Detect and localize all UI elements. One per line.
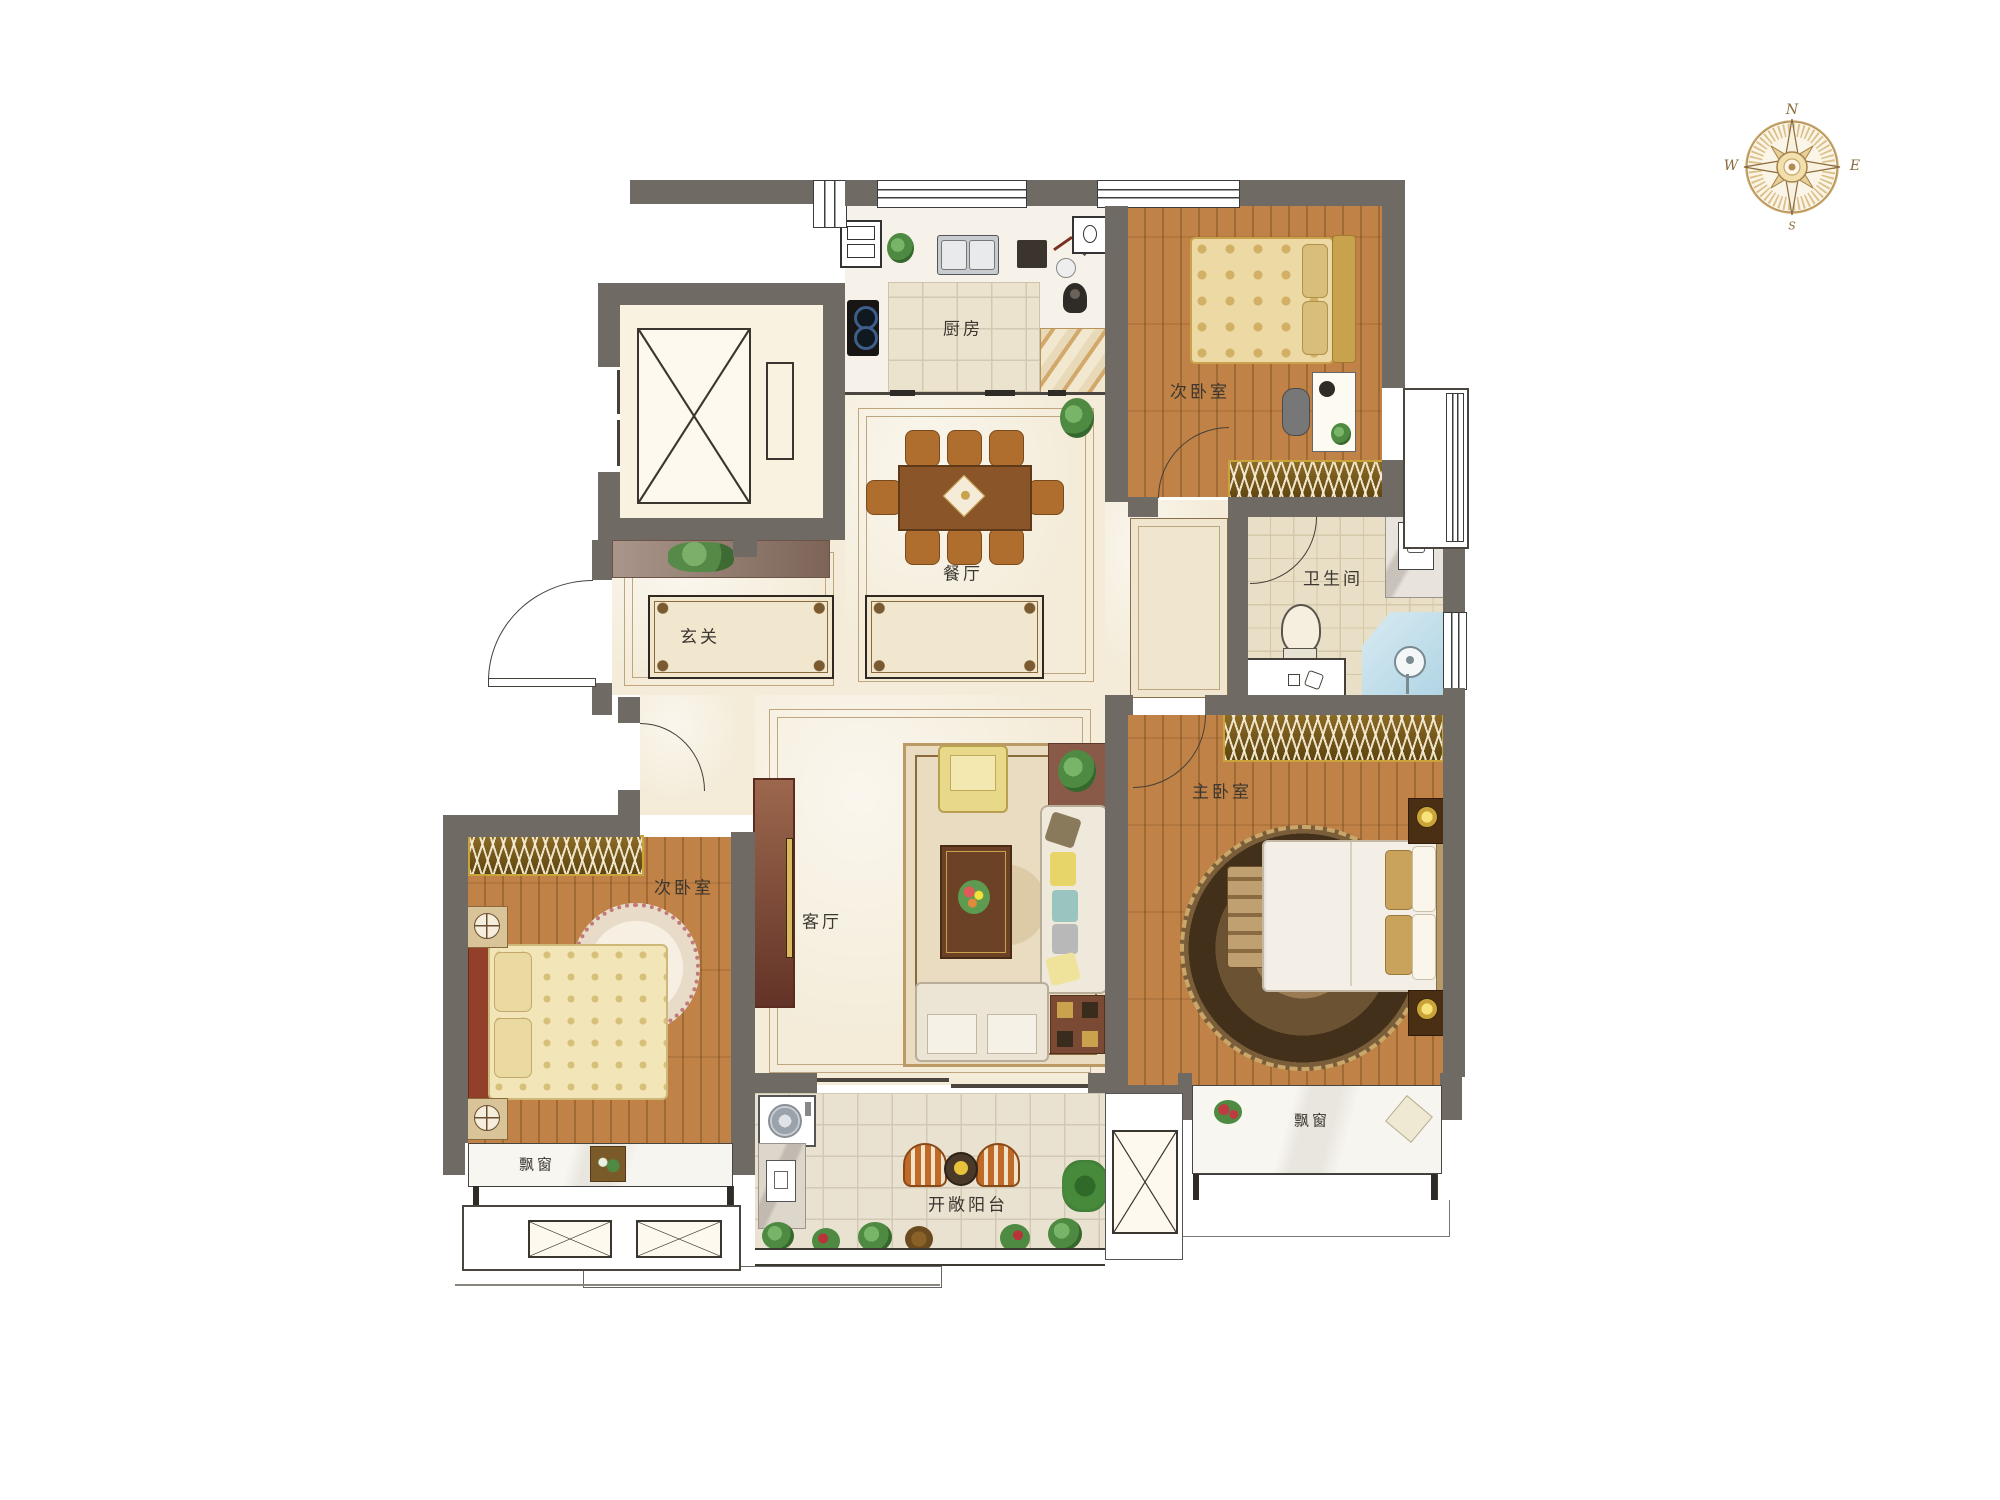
coffee-table-flowers <box>958 880 990 914</box>
wall-bedroom-top-bottom-a <box>1128 497 1158 517</box>
dining-chair-1 <box>905 430 940 467</box>
bedroom-top-pillow-1 <box>1302 244 1328 298</box>
living-loveseat <box>915 982 1049 1062</box>
elevator-shaft <box>637 328 751 504</box>
bathroom-right-window <box>1443 612 1467 690</box>
wall-kitchen-right <box>1105 206 1128 502</box>
compass-west-label: W <box>1724 158 1738 174</box>
compass-east-label: E <box>1850 158 1860 174</box>
left-platform-baseline <box>455 1284 940 1286</box>
bedroom-top-pillow-2 <box>1302 301 1328 355</box>
sofa-pillow-3 <box>1052 890 1078 922</box>
kitchen-pass-dash-2 <box>985 390 1015 396</box>
washing-machine <box>758 1095 816 1147</box>
balcony-plant-5 <box>1048 1218 1082 1250</box>
master-bed-foldline <box>1350 842 1352 986</box>
balcony-chair-1 <box>903 1143 947 1187</box>
wall-top-kitchen-left <box>845 180 877 206</box>
room-label-dining: 餐厅 <box>943 560 983 585</box>
bedroom-top-stool <box>1282 388 1310 436</box>
wall-bedroom-left-side <box>443 815 468 1143</box>
cutting-board <box>1017 240 1047 268</box>
living-side-table <box>1050 995 1105 1054</box>
master-pillow-gold-2 <box>1385 915 1413 975</box>
shower-handle <box>1406 674 1409 694</box>
dining-plant <box>1060 398 1094 438</box>
sofa-pillow-2 <box>1050 852 1076 886</box>
dining-chair-4 <box>905 528 940 565</box>
balcony-column-xbox <box>1112 1130 1178 1234</box>
bathroom-bay-window <box>1446 393 1464 542</box>
room-label-master: 主卧室 <box>1192 778 1252 803</box>
wall-shaft-left-a <box>598 305 620 367</box>
floor-plan-canvas: 厨房 次卧室 卫生间 餐厅 玄关 客厅 主卧室 次卧室 飘窗 飘窗 开敞阳台 N… <box>0 0 2000 1500</box>
wall-entry-left-b <box>592 683 612 715</box>
room-label-balcony: 开敞阳台 <box>928 1191 1008 1216</box>
kitchen-plant <box>887 233 914 263</box>
bedroom-left-lamp-1 <box>474 913 500 939</box>
wall-hall-ext-a <box>618 697 640 723</box>
master-pillow-white-1 <box>1412 846 1436 912</box>
toilet <box>1281 604 1321 654</box>
bedroom-top-headboard <box>1332 235 1356 363</box>
shower-drain <box>1394 646 1426 678</box>
room-label-bay-master: 飘窗 <box>1294 1110 1330 1131</box>
wall-master-right <box>1443 688 1465 1077</box>
bedroom-left-pillow-2 <box>494 1018 532 1078</box>
balcony-railing <box>755 1248 1105 1266</box>
water-heater <box>1072 216 1108 254</box>
room-label-entry: 玄关 <box>680 623 720 648</box>
kitchen-pass-line <box>845 392 1105 395</box>
stove <box>847 300 879 356</box>
master-lamp-1 <box>1416 806 1438 828</box>
entry-medallion <box>648 595 834 679</box>
kitchen-pot <box>1063 283 1087 313</box>
balcony-palm <box>1062 1160 1108 1212</box>
living-armchair <box>938 745 1008 813</box>
bedroom-left-wardrobe <box>468 835 644 876</box>
bay-master-post-2 <box>1431 1174 1437 1200</box>
wall-shaft-top <box>598 283 845 305</box>
lightwell-window <box>813 180 847 228</box>
wall-mid-horizontal-b <box>1205 695 1465 715</box>
balcony-plant-1 <box>762 1222 794 1250</box>
elevator-door-mark-2 <box>617 420 620 466</box>
wall-bathroom-left <box>1228 517 1248 697</box>
kitchen-plate <box>1056 258 1076 278</box>
room-label-bedroom-top: 次卧室 <box>1170 378 1230 403</box>
balcony-divider-stub-right <box>1088 1073 1105 1093</box>
wall-top-right <box>1238 180 1405 206</box>
entry-console-plant <box>668 542 734 572</box>
balcony-slider-2 <box>951 1084 1088 1088</box>
tv <box>786 838 793 958</box>
kitchen-corner-counter <box>1040 328 1107 397</box>
dining-chair-7 <box>866 480 902 515</box>
wall-shaft-bottom <box>598 518 845 540</box>
room-label-kitchen: 厨房 <box>943 315 983 340</box>
dining-chair-3 <box>989 430 1024 467</box>
compass-south-label: S <box>1788 220 1796 233</box>
bay-window-master-glass <box>1196 1174 1438 1202</box>
master-pillow-gold-1 <box>1385 850 1413 910</box>
bay-master-flower <box>1214 1100 1242 1124</box>
bedroom-top-wardrobe <box>1228 460 1387 502</box>
kitchen-pass-dash-3 <box>1048 390 1066 396</box>
elevator-door-mark-1 <box>617 370 620 414</box>
dining-chair-6 <box>989 528 1024 565</box>
left-platform-xbox-1 <box>528 1220 612 1258</box>
master-wardrobe <box>1223 713 1444 762</box>
bay-left-stub-2 <box>731 1137 755 1175</box>
wall-mid-horizontal-a <box>1105 695 1133 715</box>
room-label-living: 客厅 <box>802 908 842 933</box>
master-pillow-white-2 <box>1412 914 1436 980</box>
wall-bedroom-left-right <box>731 832 755 1137</box>
room-label-bay-left: 飘窗 <box>519 1154 555 1175</box>
compass-north-label: N <box>1786 102 1798 118</box>
room-label-bathroom: 卫生间 <box>1303 565 1363 590</box>
master-lamp-2 <box>1416 998 1438 1020</box>
dining-chair-2 <box>947 430 982 467</box>
bedroom-left-lamp-2 <box>474 1105 500 1131</box>
balcony-divider-stub-left <box>755 1073 817 1093</box>
bedroom-top-window <box>1097 180 1240 208</box>
balcony-sink <box>766 1160 796 1202</box>
bay-master-post-1 <box>1193 1174 1199 1200</box>
wall-master-left <box>1105 715 1128 1085</box>
elevator-counterweight <box>766 362 794 460</box>
wall-entry-tab <box>733 540 757 557</box>
balcony-chair-2 <box>976 1143 1020 1187</box>
bedroom-left-headboard <box>468 938 490 1104</box>
balcony-table <box>944 1152 978 1186</box>
bedroom-left-pillow-1 <box>494 952 532 1012</box>
kitchen-pass-dash-1 <box>890 390 915 396</box>
wall-entry-left-a <box>592 540 612 580</box>
living-corner-plant <box>1058 750 1096 792</box>
left-platform-xbox-2 <box>636 1220 722 1258</box>
balcony-slider-1 <box>817 1078 949 1082</box>
bay-master-ledge <box>1180 1200 1450 1237</box>
wall-bedroom-top-right <box>1382 206 1405 388</box>
room-label-bedroom-left: 次卧室 <box>654 874 714 899</box>
wall-lightwell-top <box>630 180 813 204</box>
wall-bedroom-left-top <box>448 815 640 837</box>
kitchen-window <box>877 180 1027 208</box>
hall-marble-panel <box>1130 518 1228 698</box>
wall-top-mid <box>1025 180 1097 206</box>
wall-bathroom-right-a <box>1443 545 1465 612</box>
sofa-pillow-4 <box>1052 924 1078 954</box>
kitchen-sink <box>937 235 999 275</box>
entry-door-arc <box>488 580 593 681</box>
dining-medallion <box>865 595 1044 679</box>
master-bay-stub-right <box>1440 1073 1462 1120</box>
wall-shaft-right <box>823 305 845 540</box>
bay-left-stub-1 <box>443 1137 465 1175</box>
dining-chair-8 <box>1028 480 1064 515</box>
bay-left-plant-box <box>590 1146 626 1182</box>
bedroom-top-desk <box>1312 372 1356 452</box>
